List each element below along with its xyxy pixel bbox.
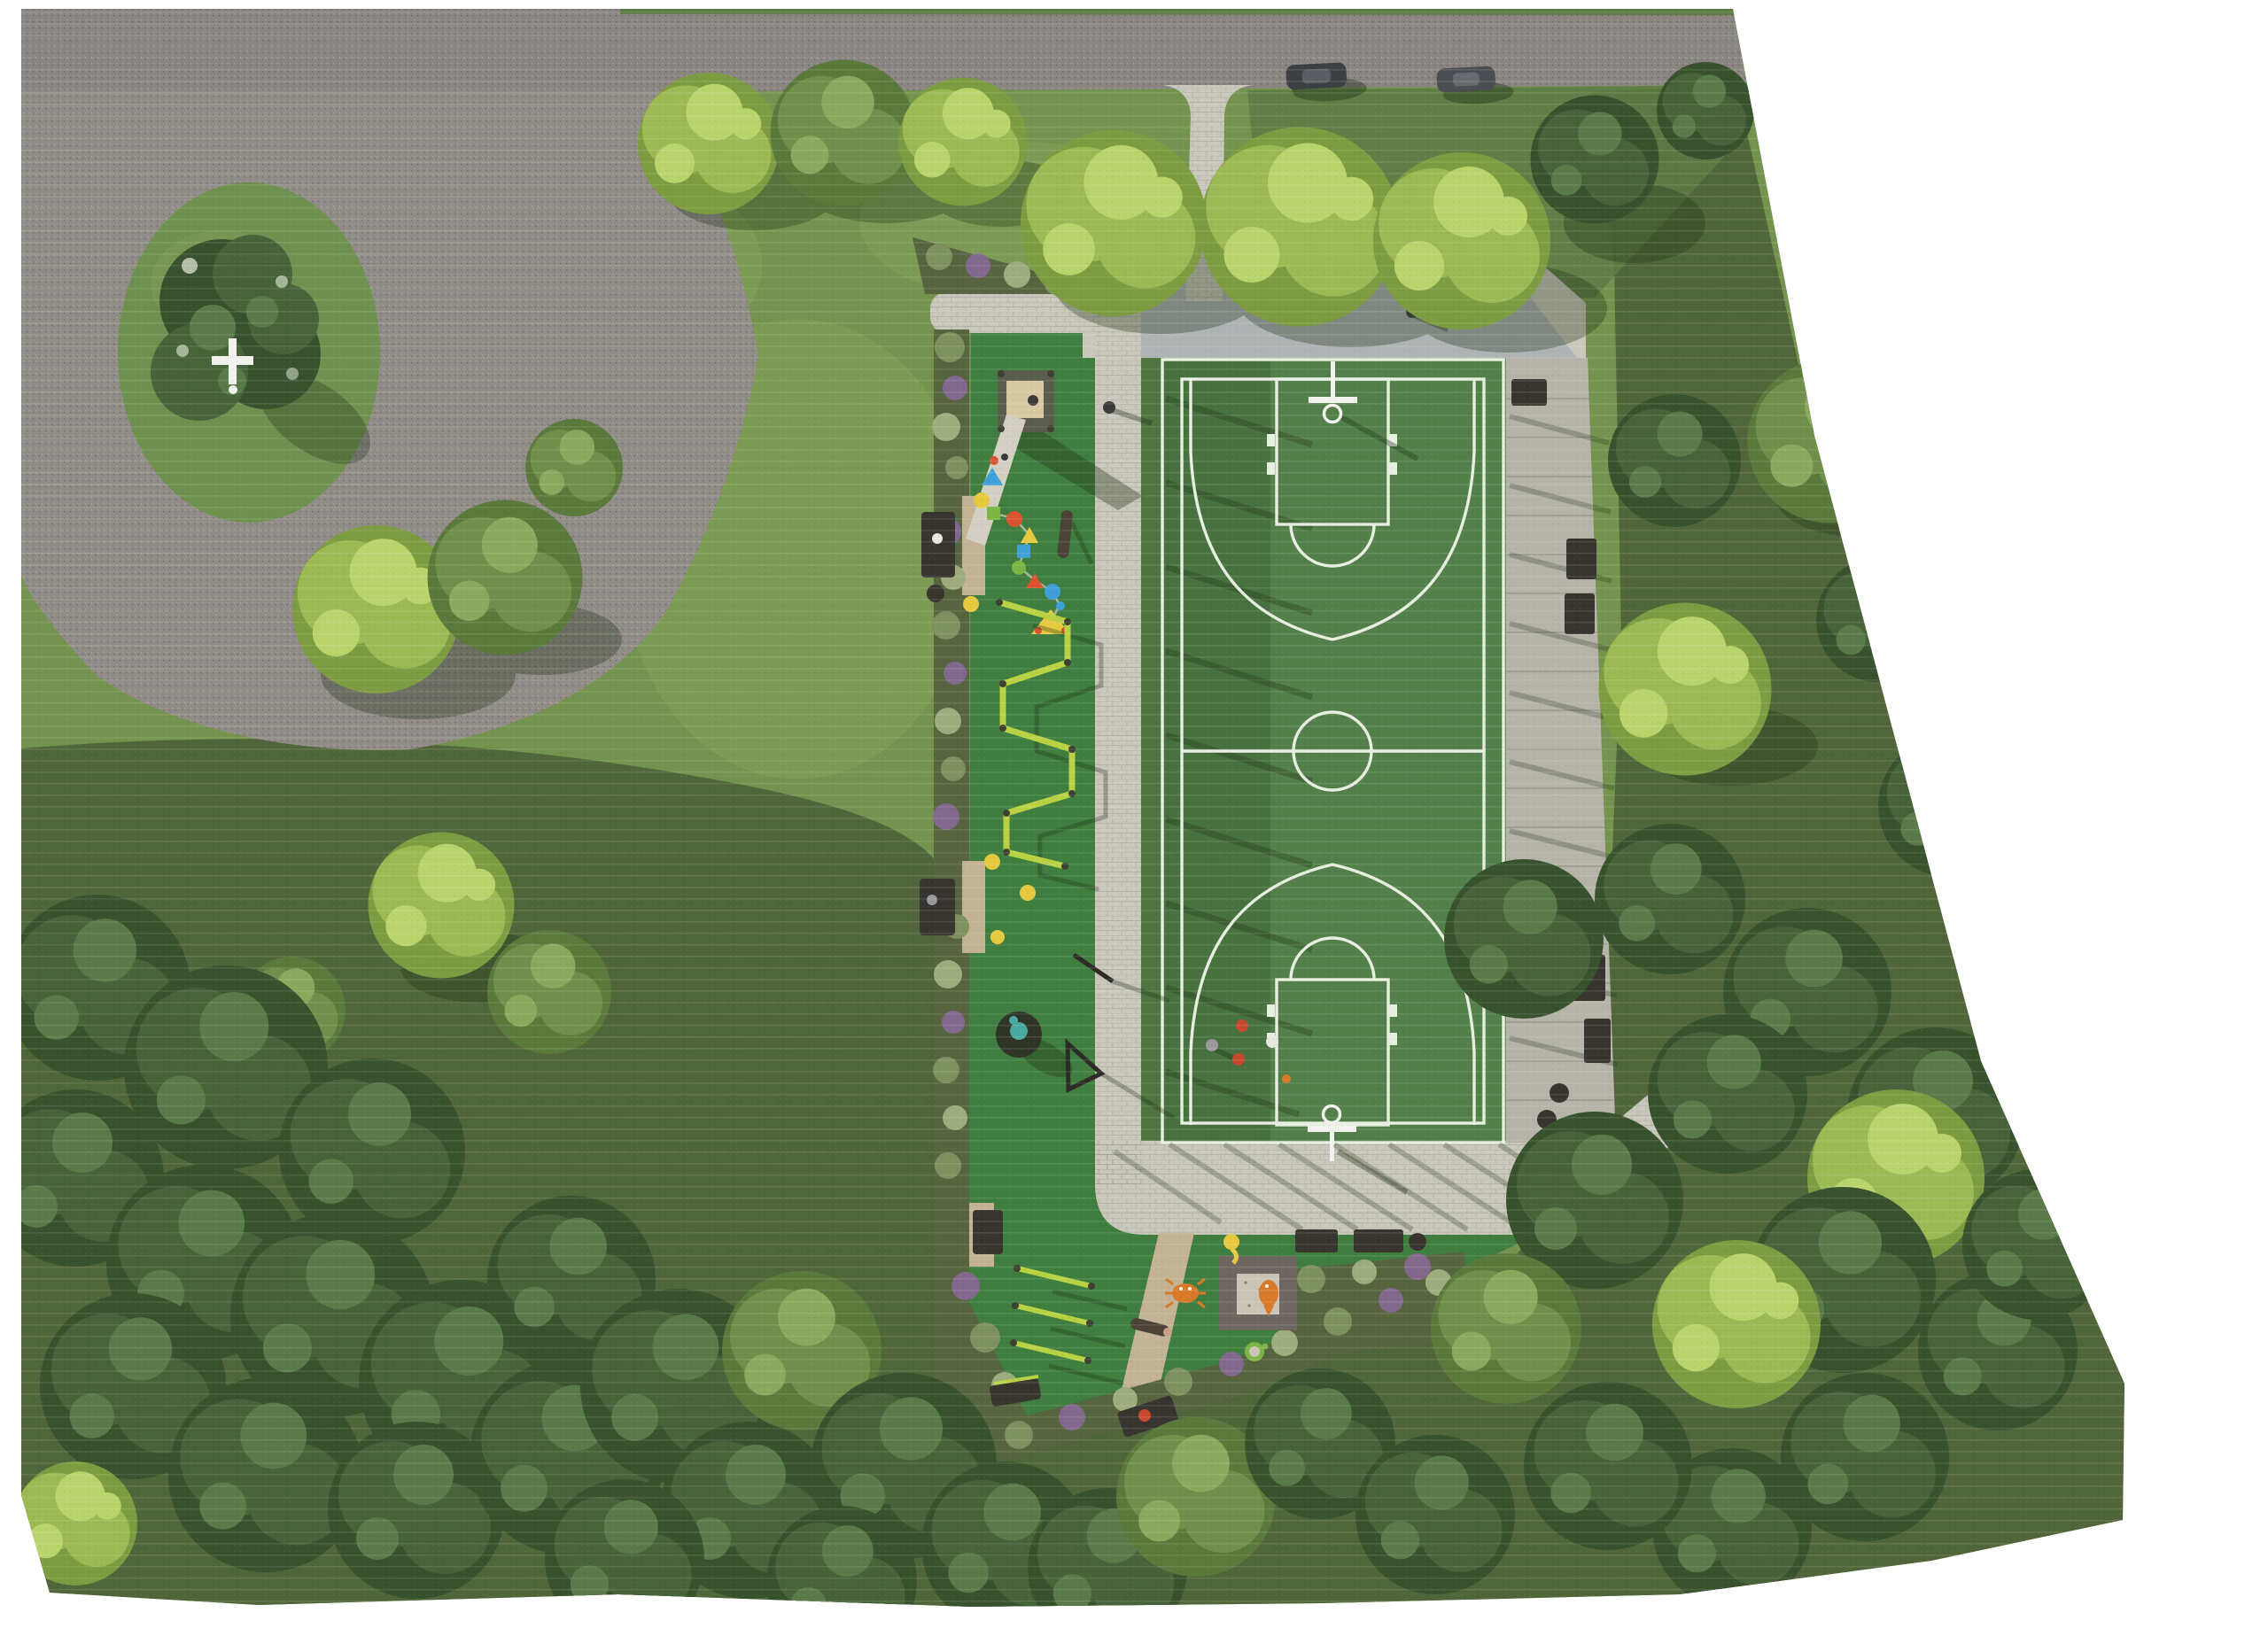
aerial-render-canvas (0, 0, 2268, 1628)
site-plan-render (0, 0, 2268, 1628)
